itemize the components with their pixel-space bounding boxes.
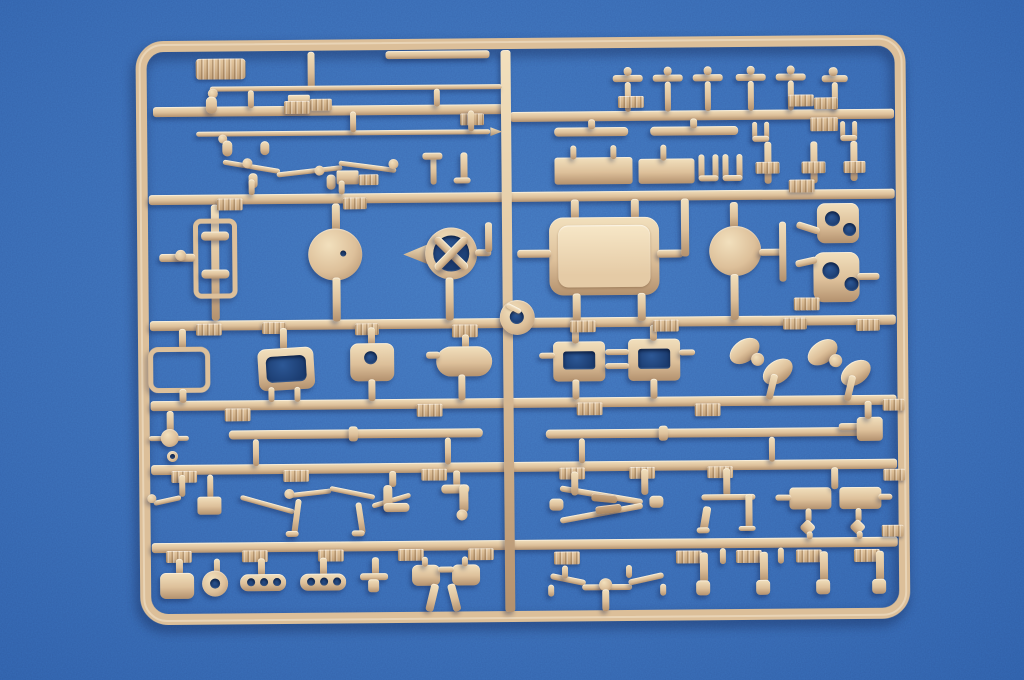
part-number-tab [788,94,814,106]
hole [822,262,839,279]
post-part [430,157,436,185]
link [857,531,863,539]
hook-ball [147,494,156,503]
stem [350,111,356,132]
part-number-tab [359,174,379,185]
cross-piece [201,231,229,240]
pin [679,349,695,355]
tank-part [839,487,881,509]
pin [539,353,555,359]
stem [876,551,884,581]
tbar-cap [704,66,712,75]
stem [462,556,468,566]
small-box-part [857,417,883,441]
part-number-tab [554,551,580,564]
post-cap [422,153,442,160]
part-number-tab [814,97,838,109]
shield-opening [265,355,307,383]
stub [778,548,784,564]
stem [562,566,568,579]
foot [368,579,379,592]
stem [820,551,828,581]
pipe-part [383,503,409,512]
part-number-tab [217,198,243,210]
stem [730,202,738,228]
round-hatch-part [308,228,362,280]
stub [426,352,440,359]
hole [170,454,175,459]
stem [760,552,768,582]
pipe-cap [739,526,756,531]
part-number-tab [570,320,596,332]
axle-cap [649,496,663,508]
stem [705,81,711,111]
cross-piece [201,269,229,278]
hole [247,578,255,586]
stub [720,548,726,564]
stem [179,475,185,497]
tank-part [789,487,831,509]
droplet-part [222,140,232,156]
stem [280,328,287,350]
stem [249,179,255,195]
stem [445,278,453,321]
part-number-tab [856,319,880,331]
stem [179,389,186,403]
propeller-hub [751,353,764,366]
part-number-tab [577,402,603,415]
injection-gate [385,50,489,59]
stem [748,81,754,111]
frame-part [193,218,238,298]
stem [422,557,428,567]
foot [286,531,299,537]
bracket-frame-part [148,347,210,394]
round-hatch-part [709,226,761,276]
droplet-part [327,175,336,190]
part-number-tab [355,323,379,335]
foot [816,579,830,594]
part-number-tab [810,117,838,131]
hole [844,277,858,291]
part-number-tab [883,469,905,481]
tbar-cap [624,67,632,76]
stem [332,277,340,321]
fork-base [723,175,743,181]
propeller-hub [829,354,842,367]
part-number-tab [843,161,865,173]
part-number-tab [284,101,310,114]
stem [665,82,671,112]
eyelet [388,159,398,169]
hole [364,351,377,364]
tbar-cap [787,66,795,75]
axle-cap [549,499,563,511]
sprue [0,0,1024,680]
link [605,363,629,369]
stem [769,437,775,462]
hole [273,578,281,586]
part-number-tab [225,408,251,421]
roller-part [161,429,179,447]
part-number-tab [794,297,820,310]
hole [333,578,341,586]
knob [175,250,186,261]
part-number-tab [789,179,815,192]
stem [602,589,609,611]
hole [340,250,346,256]
cylinder-part [452,564,480,585]
part-number-tab [196,324,222,336]
part-number-tab [618,96,644,108]
stem [571,471,578,495]
part-number-tab [883,399,905,411]
stem [690,118,697,128]
part-number-tab [755,162,779,174]
link [605,349,629,355]
stem [368,379,375,401]
stem [588,119,595,129]
stem [268,387,274,402]
pipe-part [745,494,752,530]
cup-part [160,573,194,599]
stem [641,469,648,495]
stem [723,468,730,496]
foot [756,580,770,595]
stem [579,438,585,463]
stub [517,250,551,258]
stem [865,401,872,419]
stem [700,552,708,582]
part-number-tab [736,550,762,563]
part-number-tab [417,404,443,417]
stem [434,89,440,107]
sprue-id-tab [196,58,246,79]
pin [775,495,791,501]
stem [681,198,690,256]
stem [660,145,666,161]
hole [825,211,840,226]
stem [307,52,314,90]
stem [730,274,738,320]
link [807,531,813,539]
stub [857,273,879,280]
hole [210,579,220,589]
tbar-cap [747,66,755,75]
part-number-tab [653,320,679,332]
droplet-part [260,141,269,155]
stem [445,438,451,465]
part-number-tab [676,550,702,563]
stem [831,467,838,489]
barrel-collar [659,426,668,441]
pipe-muzzle [456,509,467,520]
hole [843,223,856,236]
stem [468,110,474,131]
fork-base [699,175,719,181]
part-number-tab [796,549,822,562]
tbar-cap [664,67,672,76]
stem [458,374,465,400]
eyelet [242,158,252,168]
handle-foot [454,177,471,183]
flat-part [554,157,632,185]
part-number-tab [882,525,904,537]
stem [253,439,259,466]
knob [284,489,294,499]
part-number-tab [695,403,721,416]
part-number-tab [310,99,332,111]
stem [610,145,616,159]
stem [294,387,300,402]
part-number-tab [398,549,424,561]
stem [573,293,581,321]
foot [697,527,710,533]
stem [638,293,646,321]
foot [352,530,365,536]
hatch-top [558,225,651,288]
stem [779,222,787,282]
hole [307,578,315,586]
part-number-tab [468,548,494,560]
stem [570,145,576,159]
foot [660,584,666,596]
stem [572,379,579,399]
small-box-part [197,497,221,515]
part-number-tab [283,470,309,482]
stub [657,250,683,258]
stem [207,475,213,499]
part-number-tab [783,317,807,329]
frame-opening [563,351,595,369]
hole [320,578,328,586]
pipe-part [459,484,468,512]
stem [626,565,632,578]
cylinder-part [412,565,440,586]
oval-part [436,346,492,376]
stem [485,222,492,252]
hole [260,578,268,586]
stem [650,379,657,399]
barrel-collar [349,426,358,441]
foot [548,585,554,597]
flat-part [638,158,694,183]
stem [332,203,340,231]
foot [872,579,886,594]
frame-opening [638,349,670,369]
tbar-cap [829,67,838,76]
stem [248,90,254,108]
photo-model-kit-sprue [0,0,1024,680]
pin [878,494,892,500]
stem [339,180,345,194]
part-number-tab [421,469,447,481]
part-number-tab [343,197,367,209]
part-number-tab [801,161,825,173]
droplet-part [206,97,217,114]
foot [696,580,710,595]
eyelet [314,166,324,176]
bridge [438,567,454,573]
